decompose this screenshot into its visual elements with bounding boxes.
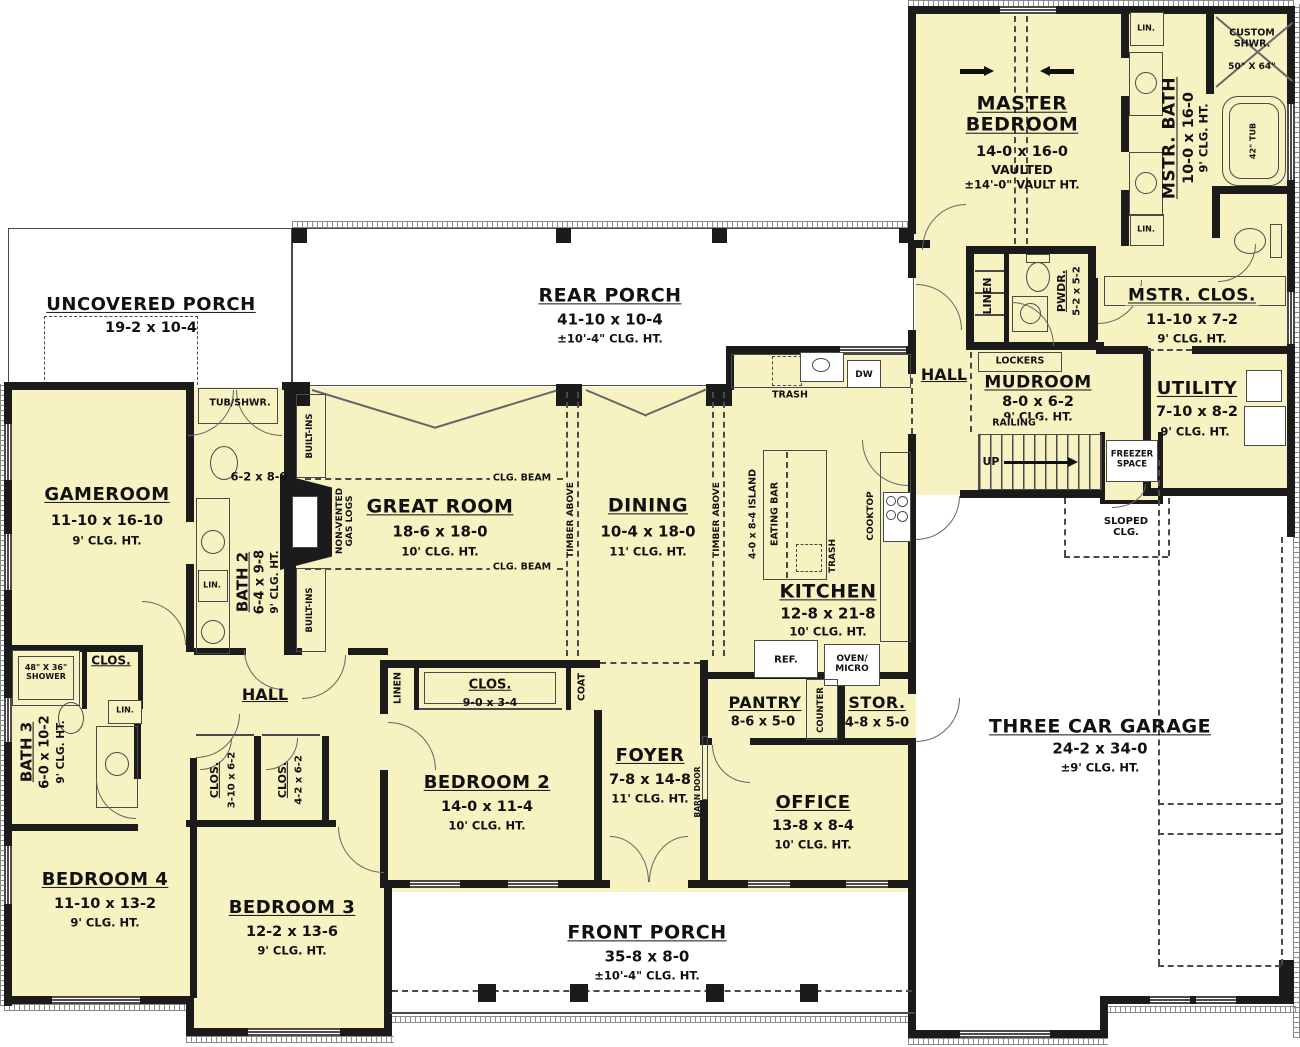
label-coat: COAT [578,673,589,701]
window [840,346,906,354]
porch-slab-line [390,1012,915,1014]
wall [1206,6,1214,94]
island-trash [796,544,822,572]
ridge-arrow-head [984,66,994,76]
wall [908,6,1294,14]
label-shower48: 48" X 36" SHOWER [15,664,77,682]
label-clg-beam: CLG. BEAM [490,563,554,574]
room-clg-utility: 9' CLG. HT. [1160,426,1229,439]
room-label-rear-porch: REAR PORCH [538,285,681,306]
porch-post [712,228,727,243]
floor-plan: MASTER BEDROOM 14-0 x 16-0 VAULTED ±14'-… [0,0,1300,1047]
wall [1279,960,1294,1004]
wall [838,679,845,741]
garage-bay-line [1158,965,1281,967]
wall [966,246,1096,254]
sloped-clg-line [1064,556,1168,558]
wall [8,824,138,831]
room-label-clos4: CLOS. [277,762,289,798]
room-label-mstr-bath: MSTR. BATH [1160,77,1179,199]
room-dims-mudroom: 8-0 x 6-2 [1002,394,1074,410]
cased-opening [600,662,700,664]
room-clg-mstr-clos: 9' CLG. HT. [1157,333,1226,346]
closet-front [262,734,320,736]
window [1150,996,1190,1004]
toilet [1026,262,1050,292]
label-tub42: 42" TUB [1250,123,1259,159]
island-line [786,452,788,578]
room-label-bath2: BATH 2 [235,552,252,612]
label-counter: COUNTER [817,687,827,733]
window [4,846,12,904]
label-up: UP [983,456,1000,468]
room-dims-master-bedroom: 14-0 x 16-0 [976,144,1068,160]
room-label-pantry: PANTRY [729,694,802,712]
wall [1287,6,1295,537]
wall [566,664,571,710]
room-dims-utility: 7-10 x 8-2 [1156,404,1238,420]
sink-bowl [105,752,129,776]
label-tub-shwr: TUB/SHWR. [209,399,270,410]
timber-above-line [577,392,579,656]
room-clg-bedroom3: 9' CLG. HT. [257,945,326,958]
dryer [1244,406,1286,446]
label-barn-door: BARN DOOR [694,767,702,818]
room-clg-dining: 11' CLG. HT. [609,546,686,559]
label-lin: LIN. [203,582,221,591]
wall [908,742,916,1038]
wall [1121,6,1129,58]
room-label-front-porch: FRONT PORCH [567,922,726,943]
label-lin: LIN. [1137,25,1155,34]
room-note-master-bedroom: VAULTED [991,163,1053,177]
label-oven-micro: OVEN/ MICRO [830,654,874,674]
window [846,880,888,888]
hatch-edge [186,1036,394,1043]
room-clg-front-porch: ±10'-4" CLG. HT. [594,970,700,983]
wall [1212,186,1220,238]
room-dims-dining: 10-4 x 18-0 [600,524,695,541]
hatch-edge [1100,1006,1296,1013]
room-note2-master-bedroom: ±14'-0" VAULT HT. [964,179,1079,192]
room-dims-bath2: 6-4 x 9-8 [254,550,269,614]
label-bath2-vanity-dims: 6-2 x 8-0 [231,471,288,484]
room-dims-pwdr: 5-2 x 5-2 [1071,266,1082,316]
label-timber-above: TIMBER ABOVE [566,479,576,561]
room-label-mudroom: MUDROOM [984,373,1091,392]
room-label-bedroom2: BEDROOM 2 [424,773,551,793]
room-label-master-bedroom: MASTER BEDROOM [947,94,1097,137]
up-arrow-head [1068,457,1078,467]
room-clg-gameroom: 9' CLG. HT. [72,535,141,548]
wall [322,736,329,824]
room-label-bedroom3: BEDROOM 3 [229,898,356,918]
wall [82,645,87,709]
window [52,996,140,1004]
hatch-edge [4,1004,194,1011]
garage-bay-line [1158,460,1160,965]
room-dims-foyer: 7-8 x 14-8 [609,772,691,788]
window [960,1030,1050,1038]
cased-opening [1148,349,1192,351]
wall [594,710,602,888]
cooktop-burner [886,510,896,520]
room-label-foyer: FOYER [616,746,685,766]
sink-bowl [812,358,830,372]
room-label-utility: UTILITY [1157,379,1238,399]
sink-bowl [1135,172,1157,194]
ridge-arrow [1050,69,1074,74]
room-clg-office: 10' CLG. HT. [774,839,851,852]
label-cooktop: COOKTOP [866,491,876,540]
room-dims-pantry: 8-6 x 5-0 [731,716,795,731]
wall [4,382,186,390]
window [4,534,12,590]
room-dims-office: 13-8 x 8-4 [772,818,854,834]
label-freezer-space: FREEZER SPACE [1107,450,1157,469]
wall [908,6,916,234]
room-label-office: OFFICE [775,793,850,813]
wall [1192,346,1294,354]
wall [966,246,974,350]
room-label-dining: DINING [608,495,688,516]
room-clg-kitchen: 10' CLG. HT. [789,626,866,639]
room-clg-bath2: 9' CLG. HT. [270,550,282,613]
up-arrow [1004,461,1068,464]
room-dims-front-porch: 35-8 x 8-0 [605,949,690,966]
window [4,424,12,480]
window [4,698,12,742]
room-dims-bath3: 6-0 x 10-2 [39,715,54,788]
label-gas-logs: NON-VENTED GAS LOGS [335,480,355,562]
wall [1212,186,1290,194]
cased-opening [911,378,913,434]
wall [414,664,419,710]
label-trash-island: TRASH [828,539,838,573]
label-railing: RAILING [989,419,1039,430]
door-arc [1112,484,1146,508]
washer [1246,370,1282,402]
room-clg-bedroom2: 10' CLG. HT. [448,820,525,833]
room-dims-bedroom3: 12-2 x 13-6 [246,924,338,940]
sloped-clg-line [1064,498,1066,556]
sink-bowl [201,620,225,644]
room-label-pwdr: PWDR. [1056,270,1068,312]
cooktop-burner [886,496,896,506]
sloped-clg-line [1168,498,1170,556]
window [1287,104,1295,180]
wall [1004,252,1009,344]
linen-shelf [975,270,1004,272]
garage-bay-line [1158,803,1281,805]
door-arc [916,698,960,742]
porch-post [706,984,724,1002]
wall [1121,190,1129,246]
wall [1121,96,1129,152]
hatch-edge [908,1038,1108,1045]
porch-post [292,228,307,243]
window [1196,996,1236,1004]
room-clg-garage: ±9' CLG. HT. [1061,762,1140,775]
label-lin: LIN. [116,707,134,716]
window [508,880,558,888]
label-clg-beam: CLG. BEAM [490,474,554,485]
porch-post [800,984,818,1002]
toilet-tank [1026,254,1050,263]
room-label-clos3: CLOS. [209,762,221,798]
room-clg-foyer: 11' CLG. HT. [611,793,688,806]
label-custom-shwr-size: 50" X 64" [1228,62,1276,72]
room-label-great-room: GREAT ROOM [367,496,514,517]
hatch-edge [390,1016,915,1023]
wall [380,660,388,714]
label-linen: LINEN [394,672,405,704]
hatch-edge [292,221,914,228]
room-dims-clos3: 3-10 x 6-2 [226,752,237,809]
room-label-bedroom4: BEDROOM 4 [42,870,169,890]
wall [186,564,194,652]
label-lin: LIN. [1137,226,1155,235]
room-label-gameroom: GAMEROOM [44,485,169,505]
label-sloped-clg: SLOPED CLG. [1100,516,1152,538]
window [748,880,790,888]
room-label-bath3: BATH 3 [19,722,36,782]
wall [960,490,1104,498]
room-dims-clos-b2: 9-0 x 3-4 [463,697,518,709]
room-dims-clos4: 4-2 x 6-2 [293,755,304,805]
timber-above-line [723,392,725,656]
room-dims-bedroom2: 14-0 x 11-4 [441,799,533,815]
room-dims-mstr-bath: 10-0 x 16-0 [1181,92,1197,184]
room-clg-rear-porch: ±10'-4" CLG. HT. [557,333,663,346]
room-label-clos-hall: CLOS. [91,654,130,667]
wall [1143,488,1294,496]
room-dims-uncovered-porch: 19-2 x 10-4 [105,320,197,336]
room-label-mstr-clos: MSTR. CLOS. [1125,286,1259,305]
room-label-stor: STOR. [848,694,905,712]
room-dims-rear-porch: 41-10 x 10-4 [557,312,663,329]
room-clg-great-room: 10' CLG. HT. [401,546,478,559]
room-clg-bath3: 9' CLG. HT. [56,720,68,783]
wall [190,758,197,998]
porch-edge [392,990,912,992]
wall [908,246,916,278]
wall [254,736,261,824]
window [410,880,460,888]
trash-pullout [772,356,802,386]
room-dims-mstr-clos: 11-10 x 7-2 [1146,312,1238,328]
ridge-arrow [960,69,984,74]
sink-bowl [1135,72,1157,94]
label-custom-shwr: CUSTOM SHWR. [1221,28,1283,49]
room-clg-bedroom4: 9' CLG. HT. [70,917,139,930]
room-clg-mstr-bath: 9' CLG. HT. [1198,103,1211,172]
room-dims-stor: 4-8 x 5-0 [845,717,909,732]
room-label-hall-right: HALL [921,366,967,384]
label-eating-bar: EATING BAR [771,482,782,546]
room-label-kitchen: KITCHEN [780,581,877,602]
ridge-arrow-head [1040,66,1050,76]
sink-bowl [201,530,225,554]
label-dw: DW [855,370,872,380]
label-lockers: LOCKERS [996,357,1045,368]
room-dims-great-room: 18-6 x 18-0 [392,524,487,541]
room-dims-bedroom4: 11-10 x 13-2 [54,896,156,912]
cooktop-burner [897,496,908,507]
wall [186,820,336,827]
garage-door-line [1281,537,1283,965]
label-timber-above: TIMBER ABOVE [712,479,722,561]
label-built-ins: BUILT-INS [306,413,316,458]
window [1000,6,1056,14]
porch-post [570,984,588,1002]
fireplace-box [292,496,318,548]
label-island-dims: 4-0 x 8-4 ISLAND [749,469,760,559]
window [248,1028,340,1036]
room-label-uncovered-porch: UNCOVERED PORCH [46,295,255,315]
garage-bay-line [1158,833,1281,835]
toilet-tank [1270,224,1282,258]
railing-opening [970,352,972,432]
label-trash: TRASH [772,391,808,402]
room-dims-gameroom: 11-10 x 16-10 [51,513,163,529]
wall [348,648,388,655]
room-label-clos-b2: CLOS. [469,679,512,694]
porch-post [556,228,571,243]
room-label-garage: THREE CAR GARAGE [989,716,1211,737]
room-dims-kitchen: 12-8 x 21-8 [780,606,875,623]
room-label-hall-left: HALL [242,686,288,704]
barn-door-panel [702,736,708,800]
porch-post [899,228,914,243]
window [1287,292,1295,344]
label-linen: LINEN [982,277,994,314]
porch-post [478,984,496,1002]
door-arc [916,496,960,540]
label-built-ins: BUILT-INS [306,587,316,632]
cooktop-burner [897,511,908,522]
label-ref: REF. [774,654,798,665]
room-dims-garage: 24-2 x 34-0 [1052,741,1147,758]
